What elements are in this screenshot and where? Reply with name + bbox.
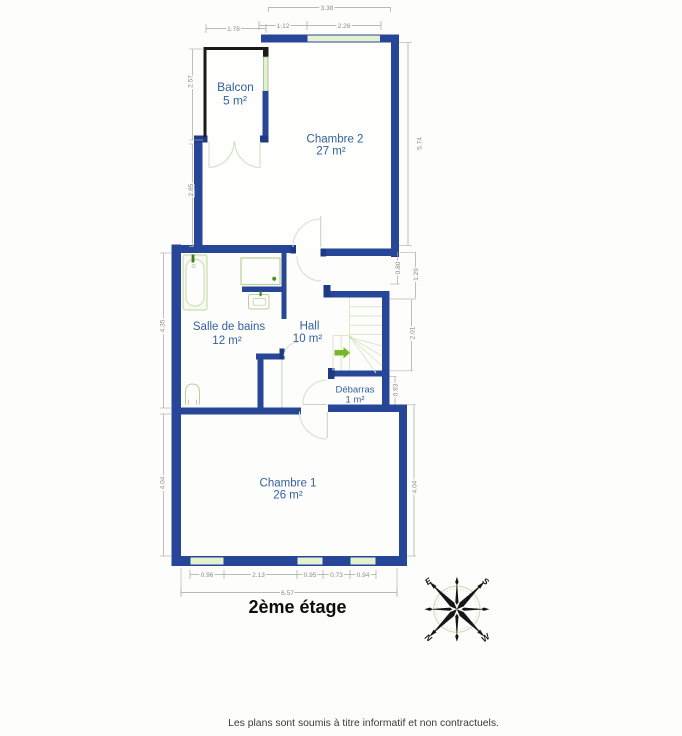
svg-text:5.74: 5.74 <box>417 137 424 150</box>
svg-text:0.96: 0.96 <box>201 572 214 579</box>
svg-text:1.78: 1.78 <box>227 26 240 33</box>
svg-text:4.04: 4.04 <box>160 476 167 489</box>
svg-text:1.12: 1.12 <box>277 23 290 30</box>
svg-text:10 m²: 10 m² <box>293 333 323 345</box>
svg-text:Chambre 2: Chambre 2 <box>307 134 364 146</box>
svg-text:Hall: Hall <box>300 321 320 333</box>
svg-text:1 m²: 1 m² <box>346 395 365 406</box>
svg-text:0.93: 0.93 <box>393 383 400 396</box>
svg-text:Salle de bains: Salle de bains <box>193 321 265 333</box>
svg-text:12 m²: 12 m² <box>212 335 242 347</box>
svg-text:26 m²: 26 m² <box>273 490 303 502</box>
svg-text:2.57: 2.57 <box>188 75 195 88</box>
svg-text:0.73: 0.73 <box>330 572 343 579</box>
svg-text:5 m²: 5 m² <box>223 94 247 108</box>
svg-text:2.26: 2.26 <box>338 23 351 30</box>
svg-text:3.38: 3.38 <box>321 5 334 12</box>
svg-text:0.95: 0.95 <box>304 572 317 579</box>
svg-text:4.04: 4.04 <box>412 480 419 493</box>
svg-text:0.94: 0.94 <box>357 572 370 579</box>
svg-text:Chambre 1: Chambre 1 <box>260 478 317 490</box>
svg-text:4.35: 4.35 <box>160 319 167 332</box>
svg-text:6.57: 6.57 <box>281 590 294 597</box>
svg-text:Les plans sont soumis à titre: Les plans sont soumis à titre informatif… <box>228 718 499 729</box>
svg-text:Balcon: Balcon <box>217 80 254 94</box>
svg-text:1.29: 1.29 <box>413 268 420 281</box>
svg-text:2.13: 2.13 <box>252 572 265 579</box>
svg-text:27 m²: 27 m² <box>316 146 346 158</box>
svg-text:2ème étage: 2ème étage <box>248 597 346 617</box>
svg-text:2.01: 2.01 <box>410 326 417 339</box>
svg-text:0.80: 0.80 <box>395 261 402 274</box>
svg-text:2.85: 2.85 <box>188 183 195 196</box>
